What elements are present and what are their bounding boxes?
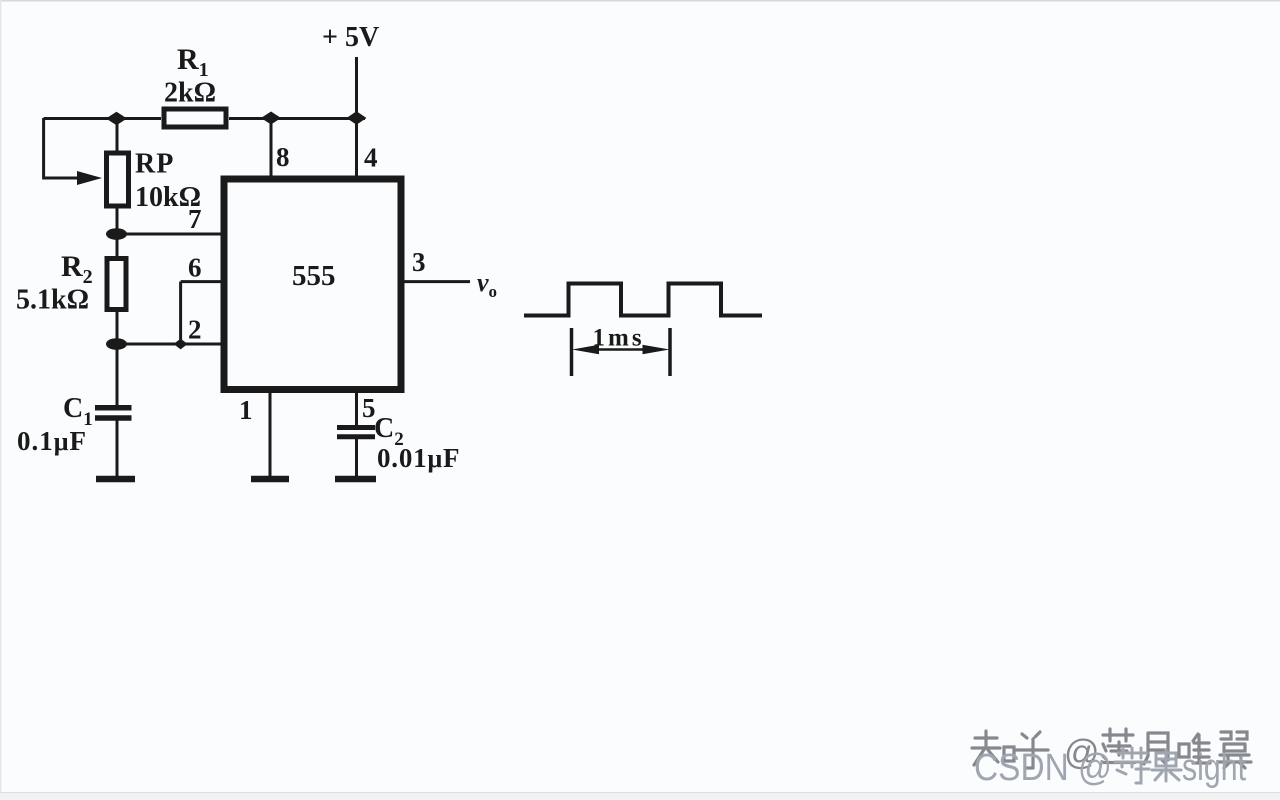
svg-text:2kΩ: 2kΩ: [164, 78, 216, 109]
svg-text:7: 7: [188, 204, 202, 234]
svg-text:RP: RP: [135, 149, 174, 180]
svg-text:+ 5V: + 5V: [322, 22, 379, 53]
svg-text:8: 8: [276, 142, 290, 172]
svg-text:0.01μF: 0.01μF: [377, 443, 460, 473]
svg-text:sight: sight: [1182, 747, 1246, 789]
svg-text:0.1μF: 0.1μF: [17, 426, 87, 456]
svg-text:555: 555: [292, 260, 336, 292]
svg-text:CSDN @: CSDN @: [974, 747, 1112, 789]
svg-text:1: 1: [239, 395, 253, 425]
svg-text:6: 6: [188, 253, 202, 283]
svg-text:1ms: 1ms: [593, 325, 645, 352]
svg-text:2: 2: [188, 315, 202, 345]
svg-text:3: 3: [412, 247, 426, 277]
svg-text:4: 4: [364, 143, 378, 173]
svg-text:5.1kΩ: 5.1kΩ: [16, 285, 89, 316]
